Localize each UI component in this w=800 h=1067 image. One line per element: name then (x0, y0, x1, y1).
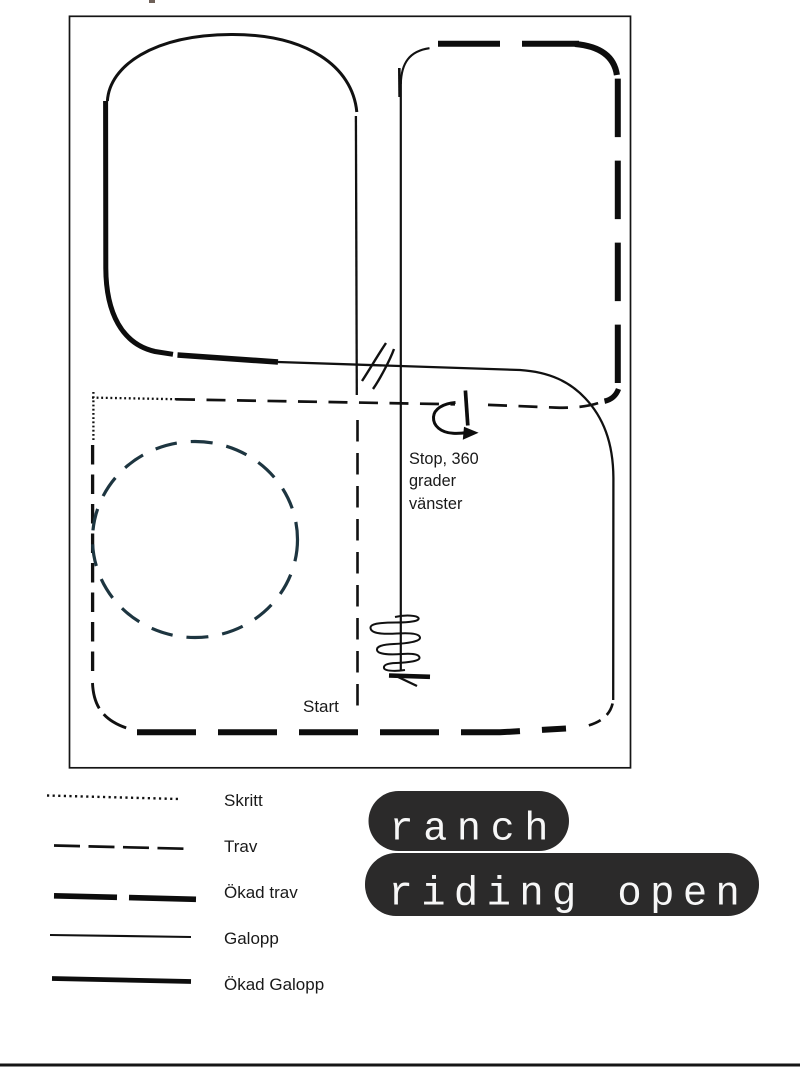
svg-text:Galopp: Galopp (224, 929, 279, 948)
svg-text:Stop, 360: Stop, 360 (409, 450, 479, 468)
svg-text:Ökad trav: Ökad trav (224, 883, 298, 902)
svg-text:Trav: Trav (224, 837, 258, 856)
svg-text:ranch: ranch (390, 808, 559, 853)
svg-text:vänster: vänster (409, 495, 463, 513)
svg-text:riding open: riding open (389, 872, 749, 918)
svg-text:Start: Start (303, 697, 339, 716)
svg-text:grader: grader (409, 472, 457, 490)
svg-text:Ökad Galopp: Ökad Galopp (224, 975, 324, 994)
svg-text:Skritt: Skritt (224, 791, 263, 810)
